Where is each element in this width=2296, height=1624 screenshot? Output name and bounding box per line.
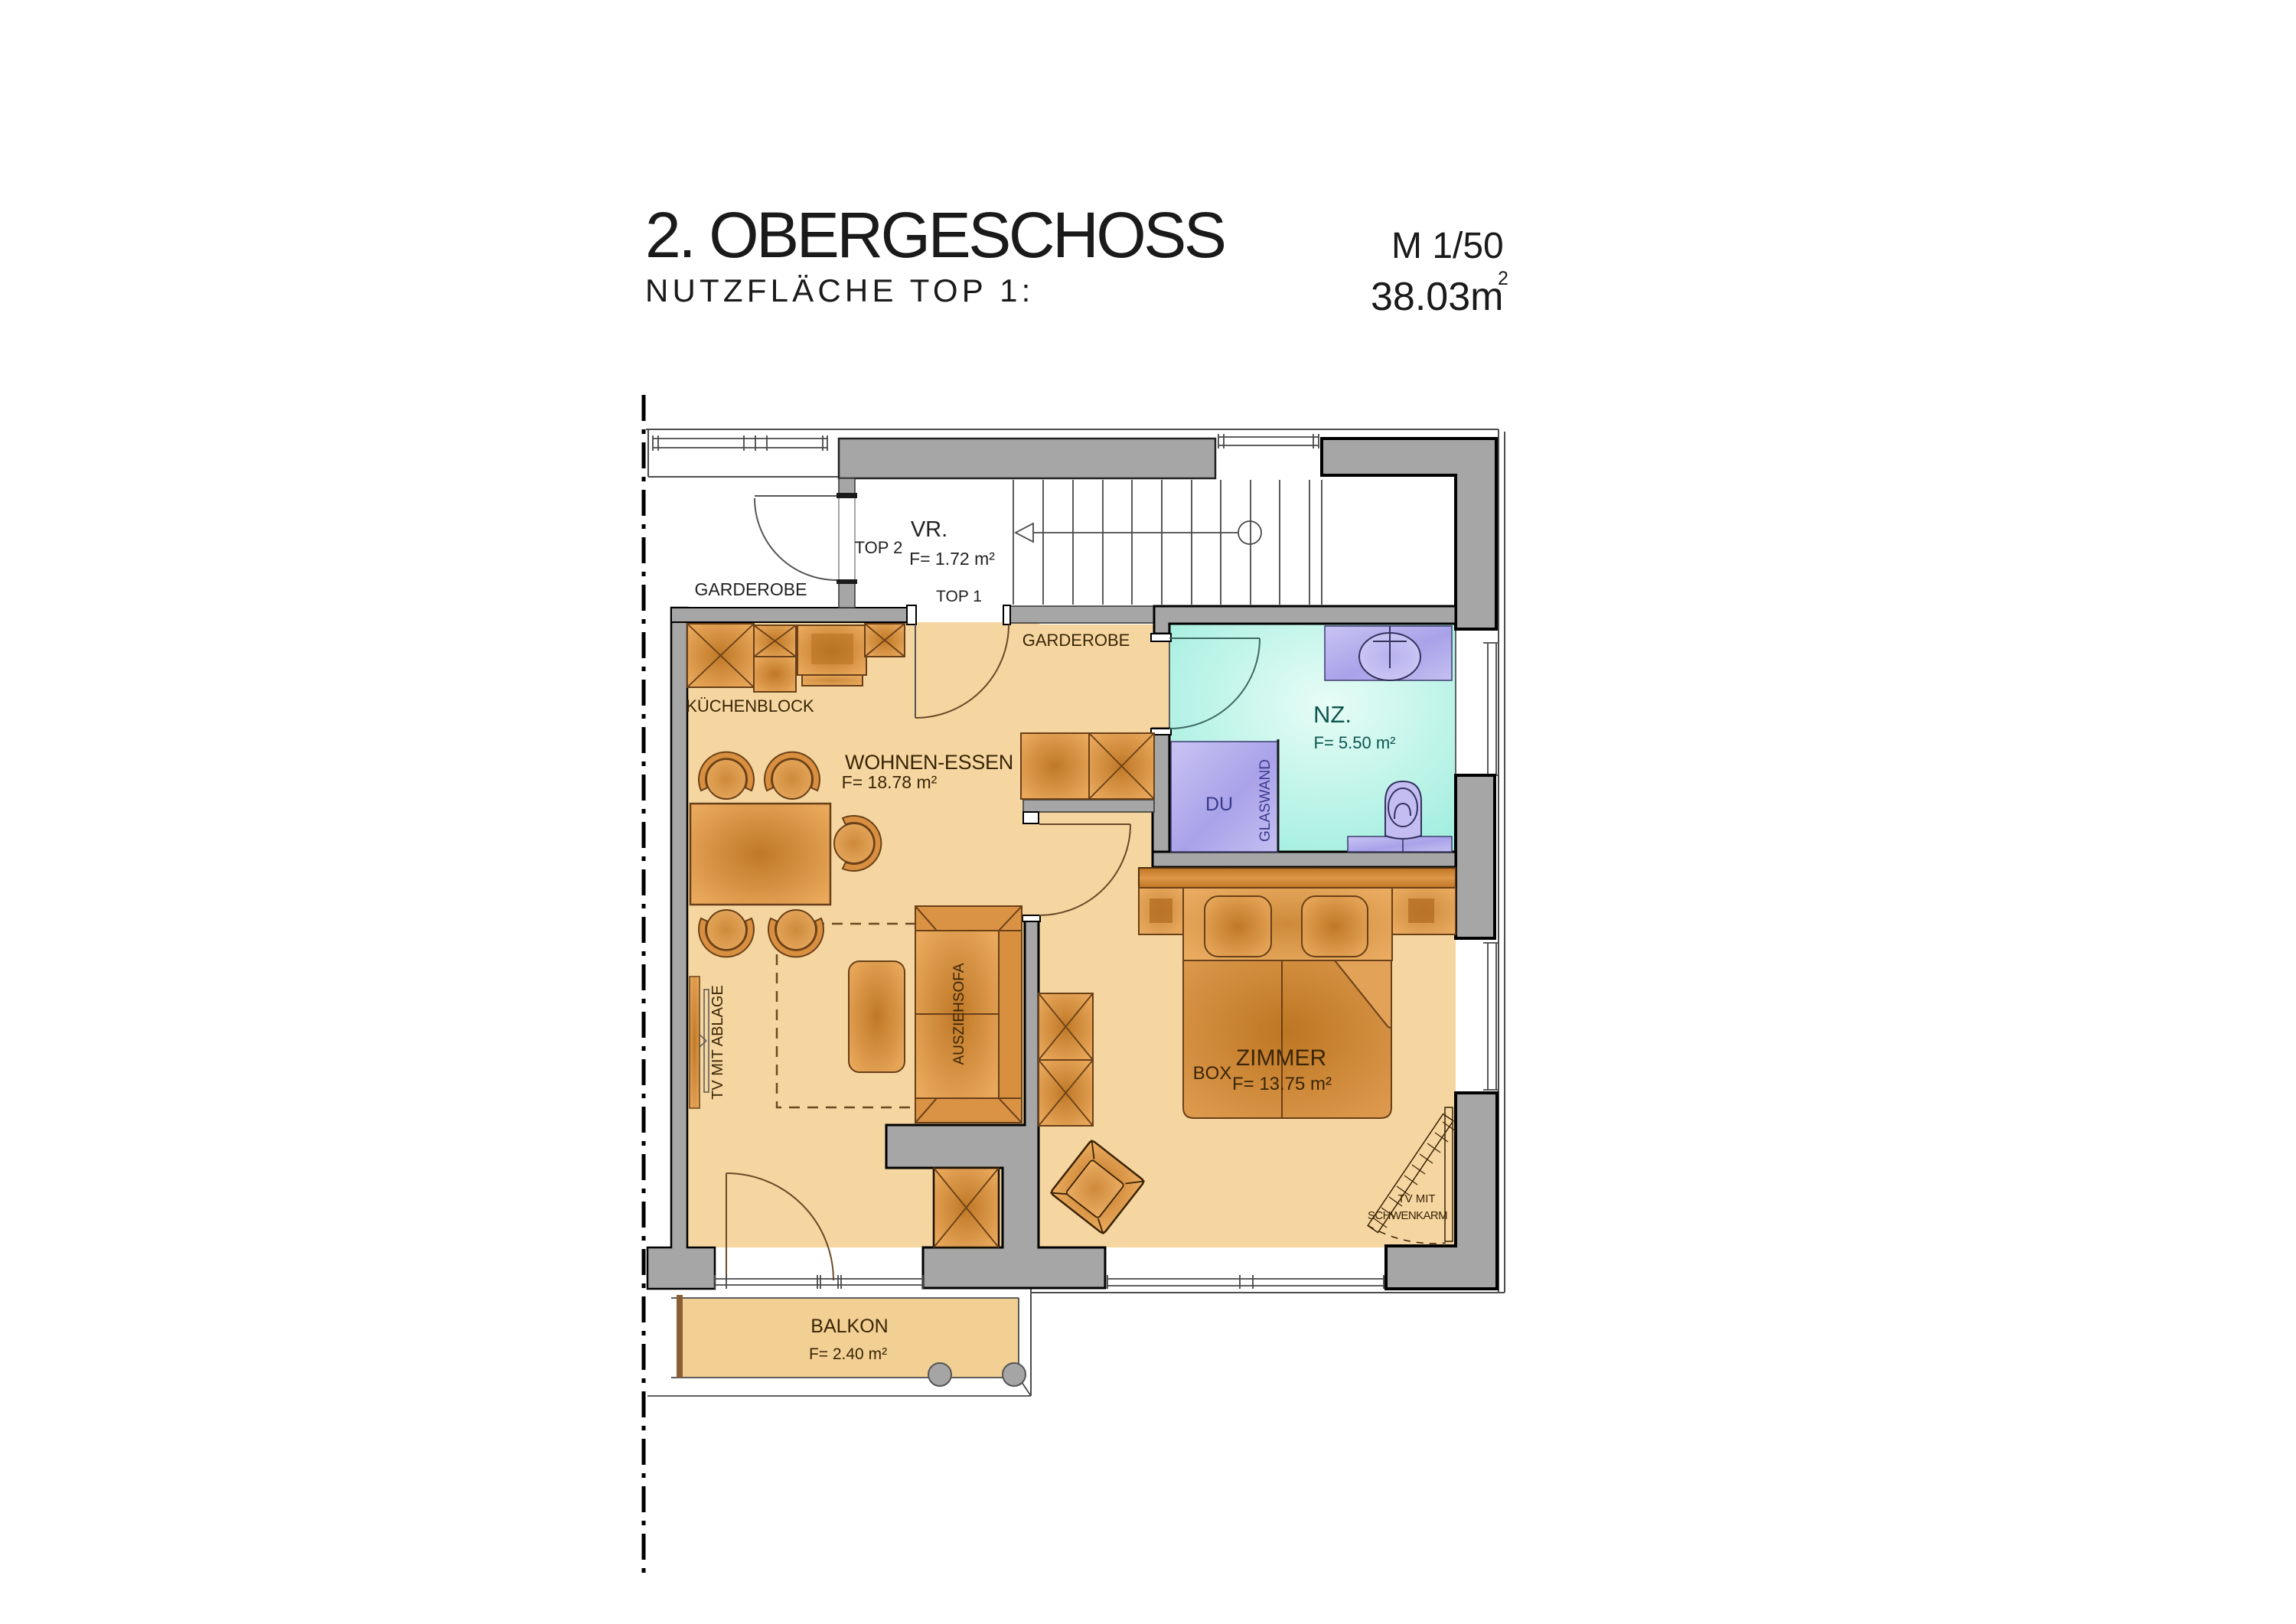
svg-text:BOX: BOX [1193,1063,1232,1084]
svg-text:NUTZFLÄCHE TOP 1:: NUTZFLÄCHE TOP 1: [645,272,1035,308]
svg-text:GLASWAND: GLASWAND [1257,759,1274,842]
svg-text:F= 2.40 m²: F= 2.40 m² [809,1345,887,1363]
svg-text:TV MIT: TV MIT [1397,1192,1435,1205]
svg-text:TOP 2: TOP 2 [855,538,903,557]
svg-text:VR.: VR. [911,517,947,542]
svg-text:38.03m: 38.03m [1371,275,1503,319]
svg-text:GARDEROBE: GARDEROBE [695,579,807,599]
svg-text:F= 5.50 m²: F= 5.50 m² [1314,733,1396,752]
svg-text:ZIMMER: ZIMMER [1236,1045,1326,1071]
svg-text:F= 13.75 m²: F= 13.75 m² [1232,1074,1332,1094]
svg-text:F= 1.72 m²: F= 1.72 m² [909,549,995,569]
svg-text:AUSZIEHSOFA: AUSZIEHSOFA [951,963,967,1065]
svg-text:GARDEROBE: GARDEROBE [1022,631,1130,650]
svg-text:KÜCHENBLOCK: KÜCHENBLOCK [686,696,814,716]
svg-text:TOP 1: TOP 1 [936,588,982,605]
svg-text:WOHNEN-ESSEN: WOHNEN-ESSEN [845,751,1013,774]
svg-text:TV MIT ABLAGE: TV MIT ABLAGE [709,985,726,1100]
svg-text:2: 2 [1498,268,1508,289]
svg-text:M 1/50: M 1/50 [1391,226,1504,266]
svg-text:F= 18.78 m²: F= 18.78 m² [842,772,938,792]
svg-text:BALKON: BALKON [810,1316,888,1337]
svg-text:DU: DU [1205,794,1233,815]
svg-text:2. OBERGESCHOSS: 2. OBERGESCHOSS [645,199,1225,271]
svg-text:SCHWENKARM: SCHWENKARM [1368,1209,1447,1222]
svg-text:NZ.: NZ. [1313,701,1352,728]
